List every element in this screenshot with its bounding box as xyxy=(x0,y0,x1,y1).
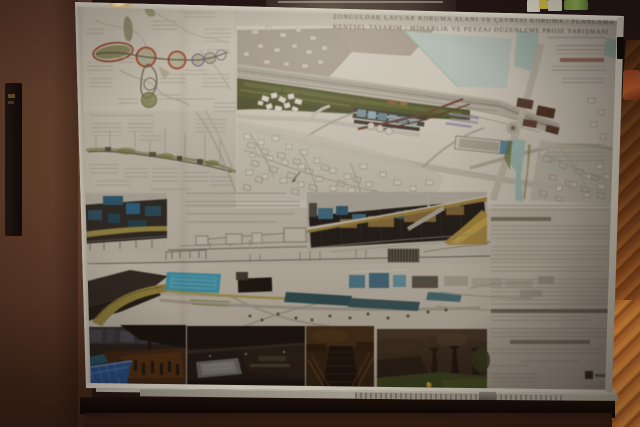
svg-text:KENTSEL TASARIM / MİMARLIK VE: KENTSEL TASARIM / MİMARLIK VE PEYZAJ DÜZ… xyxy=(333,24,609,36)
